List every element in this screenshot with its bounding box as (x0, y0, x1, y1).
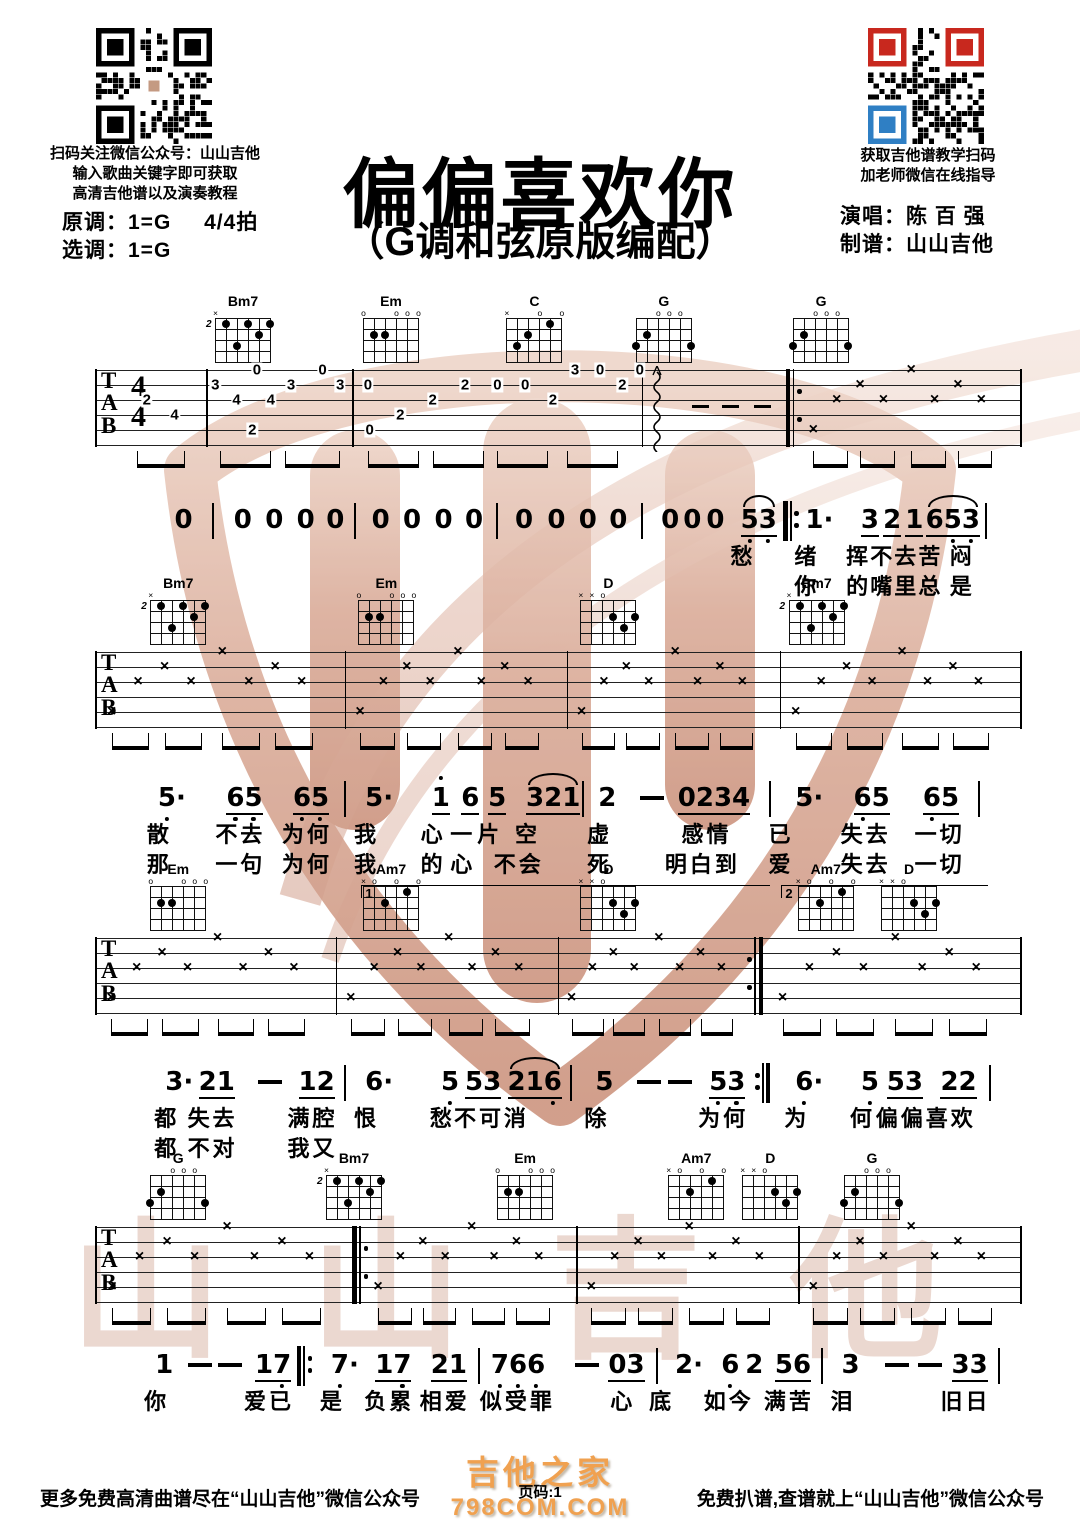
jianpu-note: 2 (883, 505, 901, 537)
lyric-char: 腔 (312, 1107, 334, 1131)
jianpu-note: 12 (299, 1067, 335, 1099)
lyric-char: 的 (846, 575, 868, 599)
tab-staff-line (95, 667, 1020, 668)
tab-fret-number: 2 (395, 408, 406, 423)
strum-x-mark: × (918, 960, 927, 976)
jianpu-note: 0 (175, 505, 193, 535)
beam-bracket (902, 733, 939, 750)
jianpu-note: 653 (926, 505, 980, 537)
jianpu-barline (769, 781, 771, 817)
beam-bracket (111, 1019, 148, 1036)
chord-finger-dot (782, 1199, 790, 1207)
jianpu-note: 5· (795, 783, 823, 813)
tab-staff-line (95, 1272, 1020, 1273)
octave-dot-below (551, 1101, 555, 1105)
strum-x-mark: × (514, 960, 523, 976)
jianpu-note: 65 (293, 783, 329, 815)
lyric-char: 何 (307, 853, 329, 877)
octave-dot-below (400, 1384, 404, 1388)
strum-x-mark: × (923, 674, 932, 690)
tab-fret-number: 0 (364, 423, 375, 438)
strum-x-mark: × (657, 1249, 666, 1265)
strum-x-mark: × (891, 930, 900, 946)
lyric-char: 为 (698, 1107, 720, 1131)
jianpu-note: 0 (706, 505, 724, 535)
lyric-char: 何 (850, 1107, 872, 1131)
chord-finger-dot (222, 320, 230, 328)
strum-x-mark: × (731, 1234, 740, 1250)
barline (95, 651, 97, 729)
strum-x-mark: × (213, 930, 222, 946)
strum-x-mark: × (186, 674, 195, 690)
strum-x-mark: × (244, 674, 253, 690)
tab-clef-letter: T (101, 937, 116, 960)
chord-finger-dot (632, 342, 640, 350)
tab-staff-line (95, 682, 1020, 683)
chord-name: G (632, 294, 696, 309)
lyric-char: 罪 (530, 1390, 552, 1414)
beam-bracket (701, 1019, 733, 1036)
lyric-char: 底 (649, 1390, 671, 1414)
chord-finger-dot (381, 331, 389, 339)
strum-x-mark: × (755, 1249, 764, 1265)
lyric-char: 死 (587, 853, 609, 877)
jianpu-note: 1 (905, 505, 923, 537)
jianpu-repeat-end (755, 1063, 770, 1103)
tab-clef-letter: A (101, 391, 118, 414)
strum-x-mark: × (953, 1234, 962, 1250)
chord-finger-dot (687, 342, 695, 350)
jianpu-note: 53 (709, 1067, 745, 1099)
barline (1020, 1226, 1022, 1304)
strum-x-mark: × (402, 659, 411, 675)
jianpu-note: 0 (265, 505, 283, 535)
open-string-icon: o (823, 309, 831, 318)
lyric-char: 那 (147, 853, 169, 877)
barline (1020, 651, 1022, 729)
jianpu-note: 766 (491, 1350, 545, 1380)
strum-x-mark: × (897, 644, 906, 660)
beam-bracket (495, 1019, 530, 1036)
beam-bracket (112, 733, 150, 750)
beam-bracket (659, 1019, 691, 1036)
jianpu-note: 0 (326, 505, 344, 535)
strum-x-mark: × (832, 1249, 841, 1265)
tab-fret-number: 0 (251, 363, 262, 378)
jianpu-note: 1 (155, 1350, 173, 1380)
lyric-char: 绪 (794, 545, 816, 569)
barline (95, 369, 97, 447)
beam-bracket (282, 1308, 321, 1325)
lyric-char: 你 (144, 1390, 166, 1414)
beam-bracket (218, 1019, 255, 1036)
tab-staff-line (95, 370, 1020, 371)
lyric-char: 可 (479, 1107, 501, 1131)
lyric-char: 去 (213, 1107, 235, 1131)
octave-dot-below (300, 817, 304, 821)
strum-x-mark: × (809, 1279, 818, 1295)
beam-bracket (433, 451, 484, 468)
chord-name: G (789, 294, 853, 309)
open-string-icon: o (654, 309, 662, 318)
jianpu-barline (570, 1065, 572, 1101)
lyric-char: 旧 (941, 1390, 963, 1414)
open-string-icon: o (834, 309, 842, 318)
strum-x-mark: × (238, 960, 247, 976)
strum-x-mark: × (609, 945, 618, 961)
lyric-char: 总 (918, 575, 940, 599)
jianpu-note: 7· (331, 1350, 359, 1380)
strum-x-mark: × (587, 1279, 596, 1295)
barline (336, 937, 338, 1015)
octave-dot-below (318, 817, 322, 821)
strum-x-mark: × (157, 945, 166, 961)
lyric-char: 明 (665, 853, 687, 877)
lyric-char: 已 (768, 823, 790, 847)
key-selected: 选调：1=G (62, 234, 171, 264)
jianpu-barline (641, 503, 643, 539)
strum-x-mark: × (945, 945, 954, 961)
tab-fret-number: 2 (247, 423, 258, 438)
lyric-char: 满 (287, 1107, 309, 1131)
beam-bracket (813, 451, 848, 468)
strum-x-mark: × (190, 1249, 199, 1265)
barline (352, 369, 354, 447)
lyric-char: 不 (494, 853, 516, 877)
jianpu-dash (668, 1080, 692, 1084)
jianpu-note: 53 (741, 505, 777, 537)
octave-dot-below (766, 539, 770, 543)
strum-x-mark: × (418, 1234, 427, 1250)
lyric-char: 为 (282, 853, 304, 877)
chord-finger-dot (546, 320, 554, 328)
beam-bracket (953, 733, 990, 750)
beam-bracket (720, 733, 753, 750)
strum-x-mark: × (588, 960, 597, 976)
jianpu-note: 0 (465, 505, 483, 535)
strum-x-mark: × (426, 674, 435, 690)
strum-x-mark: × (832, 945, 841, 961)
lyric-char: 心 (610, 1390, 632, 1414)
strum-x-mark: × (953, 377, 962, 393)
strum-x-mark: × (183, 960, 192, 976)
lyric-char: 为 (282, 823, 304, 847)
strum-x-mark: × (250, 1249, 259, 1265)
lyric-char: 我 (287, 1137, 309, 1161)
barline (345, 651, 347, 729)
beam-bracket (378, 1308, 411, 1325)
octave-dot-below (951, 539, 955, 543)
octave-dot-below (233, 817, 237, 821)
lyric-char: 挥 (846, 545, 868, 569)
chord-finger-dot (266, 320, 274, 328)
lyric-char: 受 (505, 1390, 527, 1414)
strum-x-mark: × (500, 659, 509, 675)
strum-x-mark: × (379, 674, 388, 690)
arranger-name: 山山吉他 (906, 233, 994, 256)
strum-x-mark: × (906, 1219, 915, 1235)
lyric-char: 里 (894, 575, 916, 599)
beam-bracket (591, 1308, 626, 1325)
jianpu-barline (989, 1065, 991, 1101)
octave-dot-below (338, 1384, 342, 1388)
jianpu-note: 65 (226, 783, 262, 815)
beam-bracket (423, 1308, 456, 1325)
lyric-char: 虚 (587, 823, 609, 847)
lyric-char: 一 (215, 853, 237, 877)
strum-x-mark: × (867, 674, 876, 690)
strum-x-mark: × (630, 960, 639, 976)
strum-x-mark: × (355, 704, 364, 720)
lyric-char: 失 (841, 823, 863, 847)
song-subtitle: （G调和弦原版编配） (344, 209, 735, 267)
qr-caption-left: 扫码关注微信公众号：山山吉他 输入歌曲关键字即可获取 高清吉他谱以及演奏教程 (20, 144, 290, 204)
tab-staff-line (95, 1287, 1020, 1288)
chord-name: Bm7 (211, 294, 275, 309)
strum-x-mark: × (107, 704, 116, 720)
barline (1020, 369, 1022, 447)
lyric-char: 的 (421, 853, 443, 877)
jianpu-note: 17 (375, 1350, 411, 1382)
strum-x-mark: × (696, 945, 705, 961)
beam-bracket (783, 1019, 821, 1036)
beam-bracket (351, 1019, 386, 1036)
strum-x-mark: × (567, 990, 576, 1006)
beam-bracket (613, 1019, 645, 1036)
strum-x-mark: × (297, 674, 306, 690)
lyric-char: 喜 (926, 1107, 948, 1131)
beam-bracket (360, 733, 395, 750)
lyric-char: 我 (354, 853, 376, 877)
octave-dot-below (498, 1384, 502, 1388)
beam-bracket (458, 733, 493, 750)
tab-system: TABEmooooAm7×oooD××oAm7×oooD××o×××××××××… (95, 938, 1020, 1038)
jianpu-note: 1· (805, 505, 833, 535)
jianpu-note: 0 (372, 505, 390, 535)
lyric-char: 白 (690, 853, 712, 877)
strum-x-mark: × (577, 704, 586, 720)
beam-bracket (112, 1308, 151, 1325)
jianpu-note: 0 (234, 505, 252, 535)
chord-diagram: Gooo (789, 294, 853, 364)
lyric-char: 满 (764, 1390, 786, 1414)
lyric-char: 去 (866, 823, 888, 847)
chord-name: C (502, 294, 566, 309)
jianpu-note: 17 (255, 1350, 291, 1382)
jianpu-barline (344, 781, 346, 817)
open-string-icon: o (812, 309, 820, 318)
beam-bracket (736, 1308, 771, 1325)
repeat-start-barline (786, 369, 802, 447)
lyric-char: 切 (940, 853, 962, 877)
chord-finger-dot (800, 331, 808, 339)
tab-fret-number: 2 (547, 393, 558, 408)
octave-dot-below (860, 817, 864, 821)
strum-x-mark: × (622, 659, 631, 675)
lyric-char: 泪 (830, 1390, 852, 1414)
tab-fret-number: 3 (334, 378, 345, 393)
barline (558, 937, 560, 1015)
tab-staff-line (95, 430, 1020, 431)
beam-bracket (638, 1308, 673, 1325)
volta-number: 1 (365, 886, 372, 901)
strum-x-mark: × (693, 674, 702, 690)
jianpu-line: 5·65655·165321202345·6565散不去为何我心一片空虚感情已失… (95, 783, 1020, 915)
lyric-char: 如 (704, 1390, 726, 1414)
footer-page-number: 页码:1 (0, 1481, 1080, 1502)
beam-bracket (285, 451, 341, 468)
arpeggio-squiggle-icon (650, 366, 664, 457)
tab-fret-number: 0 (519, 378, 530, 393)
lyric-char: 欢 (951, 1107, 973, 1131)
jianpu-note: 0 (403, 505, 421, 535)
chord-open-mute-markers: × (215, 309, 275, 318)
tab-fret-number: 4 (169, 408, 180, 423)
jianpu-note: 22 (940, 1067, 976, 1099)
tab-clef-letter: B (101, 414, 116, 437)
open-string-icon: o (404, 309, 412, 318)
jianpu-note: 0 (297, 505, 315, 535)
tab-fret-number: 0 (362, 378, 373, 393)
tab-clef-letter: A (101, 673, 118, 696)
tab-staff-line (95, 697, 1020, 698)
barline (780, 651, 782, 729)
arranger-label: 制谱： (840, 233, 906, 256)
jianpu-dash (188, 1363, 212, 1367)
jianpu-line: 3·21126·5532165536·55322都失去满腔恨愁不可消除为何为何偏… (95, 1067, 1020, 1199)
strum-x-mark: × (974, 674, 983, 690)
beam-bracket (626, 733, 659, 750)
strum-x-mark: × (599, 674, 608, 690)
tab-staff-line (95, 727, 1020, 728)
jianpu-note: 2· (675, 1350, 703, 1380)
tab-fret-number: 2 (617, 378, 628, 393)
lyric-char: 一 (450, 823, 472, 847)
jianpu-note: 0 (434, 505, 452, 535)
strum-x-mark: × (855, 377, 864, 393)
key-original-text: 原调：1=G (62, 211, 171, 234)
tab-fret-number: 2 (427, 393, 438, 408)
chord-finger-dot (844, 342, 852, 350)
strum-x-mark: × (816, 674, 825, 690)
key-original: 原调：1=G 4/4拍 (62, 206, 258, 236)
strum-x-mark: × (162, 1234, 171, 1250)
strum-x-mark: × (832, 392, 841, 408)
lyric-char: 空 (515, 823, 537, 847)
chord-name: Em (359, 294, 423, 309)
jianpu-note: 321 (526, 783, 580, 815)
beam-bracket (368, 451, 419, 468)
tab-staff-line (95, 445, 1020, 446)
beam-bracket (675, 733, 708, 750)
strum-x-mark: × (107, 1279, 116, 1295)
strum-x-mark: × (441, 1249, 450, 1265)
beam-bracket (813, 1308, 848, 1325)
tab-fret-number: 3 (569, 363, 580, 378)
tab-system: TABGoooBm7×2EmooooAm7×oooD××oGooo×××××××… (95, 1227, 1020, 1327)
lyric-char: 到 (715, 853, 737, 877)
tab-staff-line (95, 1227, 1020, 1228)
jianpu-barline (656, 1348, 658, 1384)
chord-open-mute-markers: ooo (636, 309, 696, 318)
jianpu-barline (354, 503, 356, 539)
open-string-icon: o (536, 309, 544, 318)
jianpu-dash (637, 1080, 661, 1084)
chord-finger-dot (344, 1199, 352, 1207)
qr-caption-left-line2: 输入歌曲关键字即可获取 (20, 164, 290, 184)
strum-x-mark: × (948, 659, 957, 675)
barline (95, 937, 97, 1015)
beam-bracket (689, 1308, 724, 1325)
octave-dot-below (728, 1384, 732, 1388)
strum-x-mark: × (512, 1234, 521, 1250)
jianpu-note: 21 (199, 1067, 235, 1099)
beam-bracket (516, 1308, 549, 1325)
jianpu-note: 6 (721, 1350, 739, 1380)
strum-x-mark: × (977, 392, 986, 408)
chord-open-mute-markers: ×oo (506, 309, 566, 318)
lyric-char: 累 (389, 1390, 411, 1414)
tab-dash (722, 405, 739, 408)
strum-x-mark: × (715, 659, 724, 675)
beam-bracket (227, 1308, 266, 1325)
strum-x-mark: × (305, 1249, 314, 1265)
tab-clef-letter: A (101, 1248, 118, 1271)
strum-x-mark: × (791, 704, 800, 720)
barline (576, 1226, 578, 1304)
lyric-char: 不 (454, 1107, 476, 1131)
octave-dot-below (734, 1101, 738, 1105)
chord-diagram: Emoooo (359, 294, 423, 364)
lyric-char: 除 (584, 1107, 606, 1131)
tab-fret-number: 2 (459, 378, 470, 393)
lyric-char: 不 (870, 545, 892, 569)
jianpu-note: 6 (461, 783, 479, 815)
strum-x-mark: × (805, 960, 814, 976)
qr-caption-left-line1: 扫码关注微信公众号：山山吉他 (20, 144, 290, 164)
octave-dot-below (969, 539, 973, 543)
beam-bracket (268, 1019, 305, 1036)
jianpu-barline (496, 503, 498, 539)
jianpu-note: 2 (598, 783, 616, 813)
strum-x-mark: × (778, 990, 787, 1006)
tab-fret-number: 3 (210, 378, 221, 393)
strum-x-mark: × (977, 1249, 986, 1265)
strum-x-mark: × (670, 644, 679, 660)
beam-bracket (572, 1019, 604, 1036)
jianpu-note: 0 (661, 505, 679, 535)
chord-grid (363, 318, 420, 364)
chord-open-mute-markers: ooo (793, 309, 853, 318)
lyric-char: 消 (504, 1107, 526, 1131)
octave-dot-below (280, 1384, 284, 1388)
strum-x-mark: × (369, 960, 378, 976)
lyric-char: 是 (950, 575, 972, 599)
beam-bracket (222, 733, 260, 750)
octave-dot-below (716, 1101, 720, 1105)
strum-x-mark: × (396, 1249, 405, 1265)
beam-bracket (949, 1019, 987, 1036)
beam-bracket (220, 451, 271, 468)
tab-fret-number: 2 (141, 393, 152, 408)
chord-diagram: Bm7×2 (211, 294, 275, 364)
strum-x-mark: × (467, 1219, 476, 1235)
chord-diagram: C×oo (502, 294, 566, 364)
tab-staff-line (95, 652, 1020, 653)
lyric-char: 你 (794, 575, 816, 599)
strum-x-mark: × (738, 674, 747, 690)
qr-code-right (868, 28, 984, 144)
